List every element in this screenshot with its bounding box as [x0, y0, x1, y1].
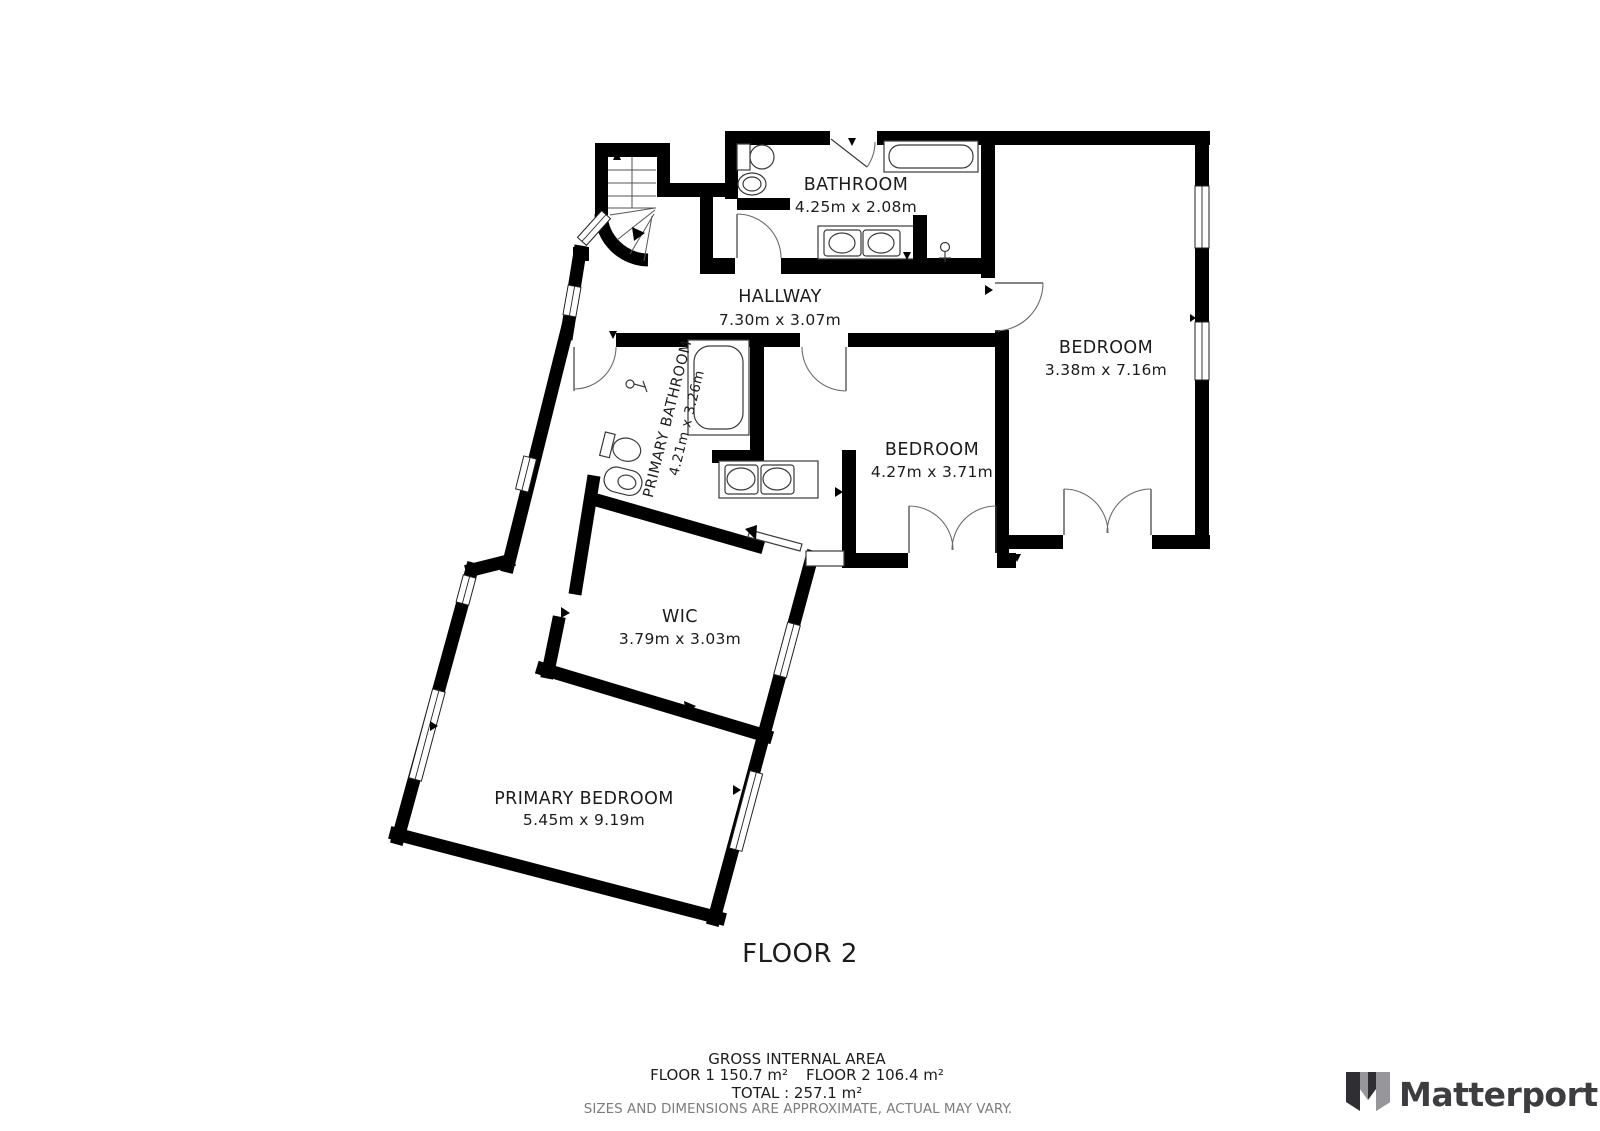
room-dims-bedroom-right: 3.38m x 7.16m [1045, 361, 1167, 379]
room-label-primary-bedroom: PRIMARY BEDROOM [494, 789, 674, 809]
room-dims-hallway: 7.30m x 3.07m [719, 311, 841, 329]
toilet-icon [600, 432, 644, 465]
matterport-logo-icon [1346, 1072, 1390, 1111]
window [409, 689, 445, 781]
staircase [573, 143, 670, 261]
window [563, 285, 581, 317]
double-vanity-icon [719, 461, 818, 498]
wall-connector [806, 551, 844, 566]
window [774, 622, 801, 678]
room-dims-bathroom: 4.25m x 2.08m [795, 198, 917, 216]
floor-plan-page: BATHROOM 4.25m x 2.08m HALLWAY 7.30m x 3… [0, 0, 1600, 1131]
door-primary-bathroom [574, 347, 616, 391]
window [1195, 322, 1209, 380]
double-vanity-icon [818, 226, 915, 259]
sink-icon [738, 173, 766, 195]
windows [409, 186, 1209, 851]
room-label-bathroom: BATHROOM [804, 175, 908, 195]
door-bathroom [735, 214, 781, 274]
room-label-hallway: HALLWAY [738, 287, 821, 307]
door-bedroom-middle [802, 347, 846, 391]
french-door-bedroom-right [1063, 489, 1152, 549]
matterport-logo: Matterport [1346, 1072, 1598, 1114]
room-label-wic: WIC [662, 607, 698, 627]
toilet-icon [737, 144, 774, 170]
room-label-bedroom-right: BEDROOM [1059, 338, 1153, 358]
room-dims-primary-bedroom: 5.45m x 9.19m [523, 811, 645, 829]
floor-label: FLOOR 2 [742, 939, 858, 969]
room-dims-wic: 3.79m x 3.03m [619, 630, 741, 648]
total-area: TOTAL : 257.1 m² [731, 1084, 863, 1102]
door-bathroom-top [830, 131, 877, 167]
floor2-area: FLOOR 2 106.4 m² [806, 1066, 944, 1084]
bathroom-stub-wall-2 [913, 215, 927, 262]
floor1-area: FLOOR 1 150.7 m² [650, 1066, 788, 1084]
faucet-icon [626, 380, 647, 392]
window [1195, 186, 1209, 248]
french-door-bedroom-middle [908, 506, 997, 568]
footer-area-summary: GROSS INTERNAL AREA FLOOR 1 150.7 m² FLO… [584, 1050, 1012, 1117]
bathroom-stub-wall [737, 198, 790, 210]
primary-bathroom-fixtures [600, 340, 818, 498]
window [456, 575, 476, 605]
bidet-icon [602, 465, 645, 498]
floor-plan: BATHROOM 4.25m x 2.08m HALLWAY 7.30m x 3… [0, 0, 1600, 1131]
room-dims-bedroom-middle: 4.27m x 3.71m [871, 463, 993, 481]
disclaimer: SIZES AND DIMENSIONS ARE APPROXIMATE, AC… [584, 1101, 1012, 1117]
bathtub-icon [884, 141, 978, 172]
room-label-bedroom-middle: BEDROOM [885, 440, 979, 460]
matterport-logo-text: Matterport [1399, 1075, 1598, 1114]
door-bedroom-right [995, 283, 1043, 331]
